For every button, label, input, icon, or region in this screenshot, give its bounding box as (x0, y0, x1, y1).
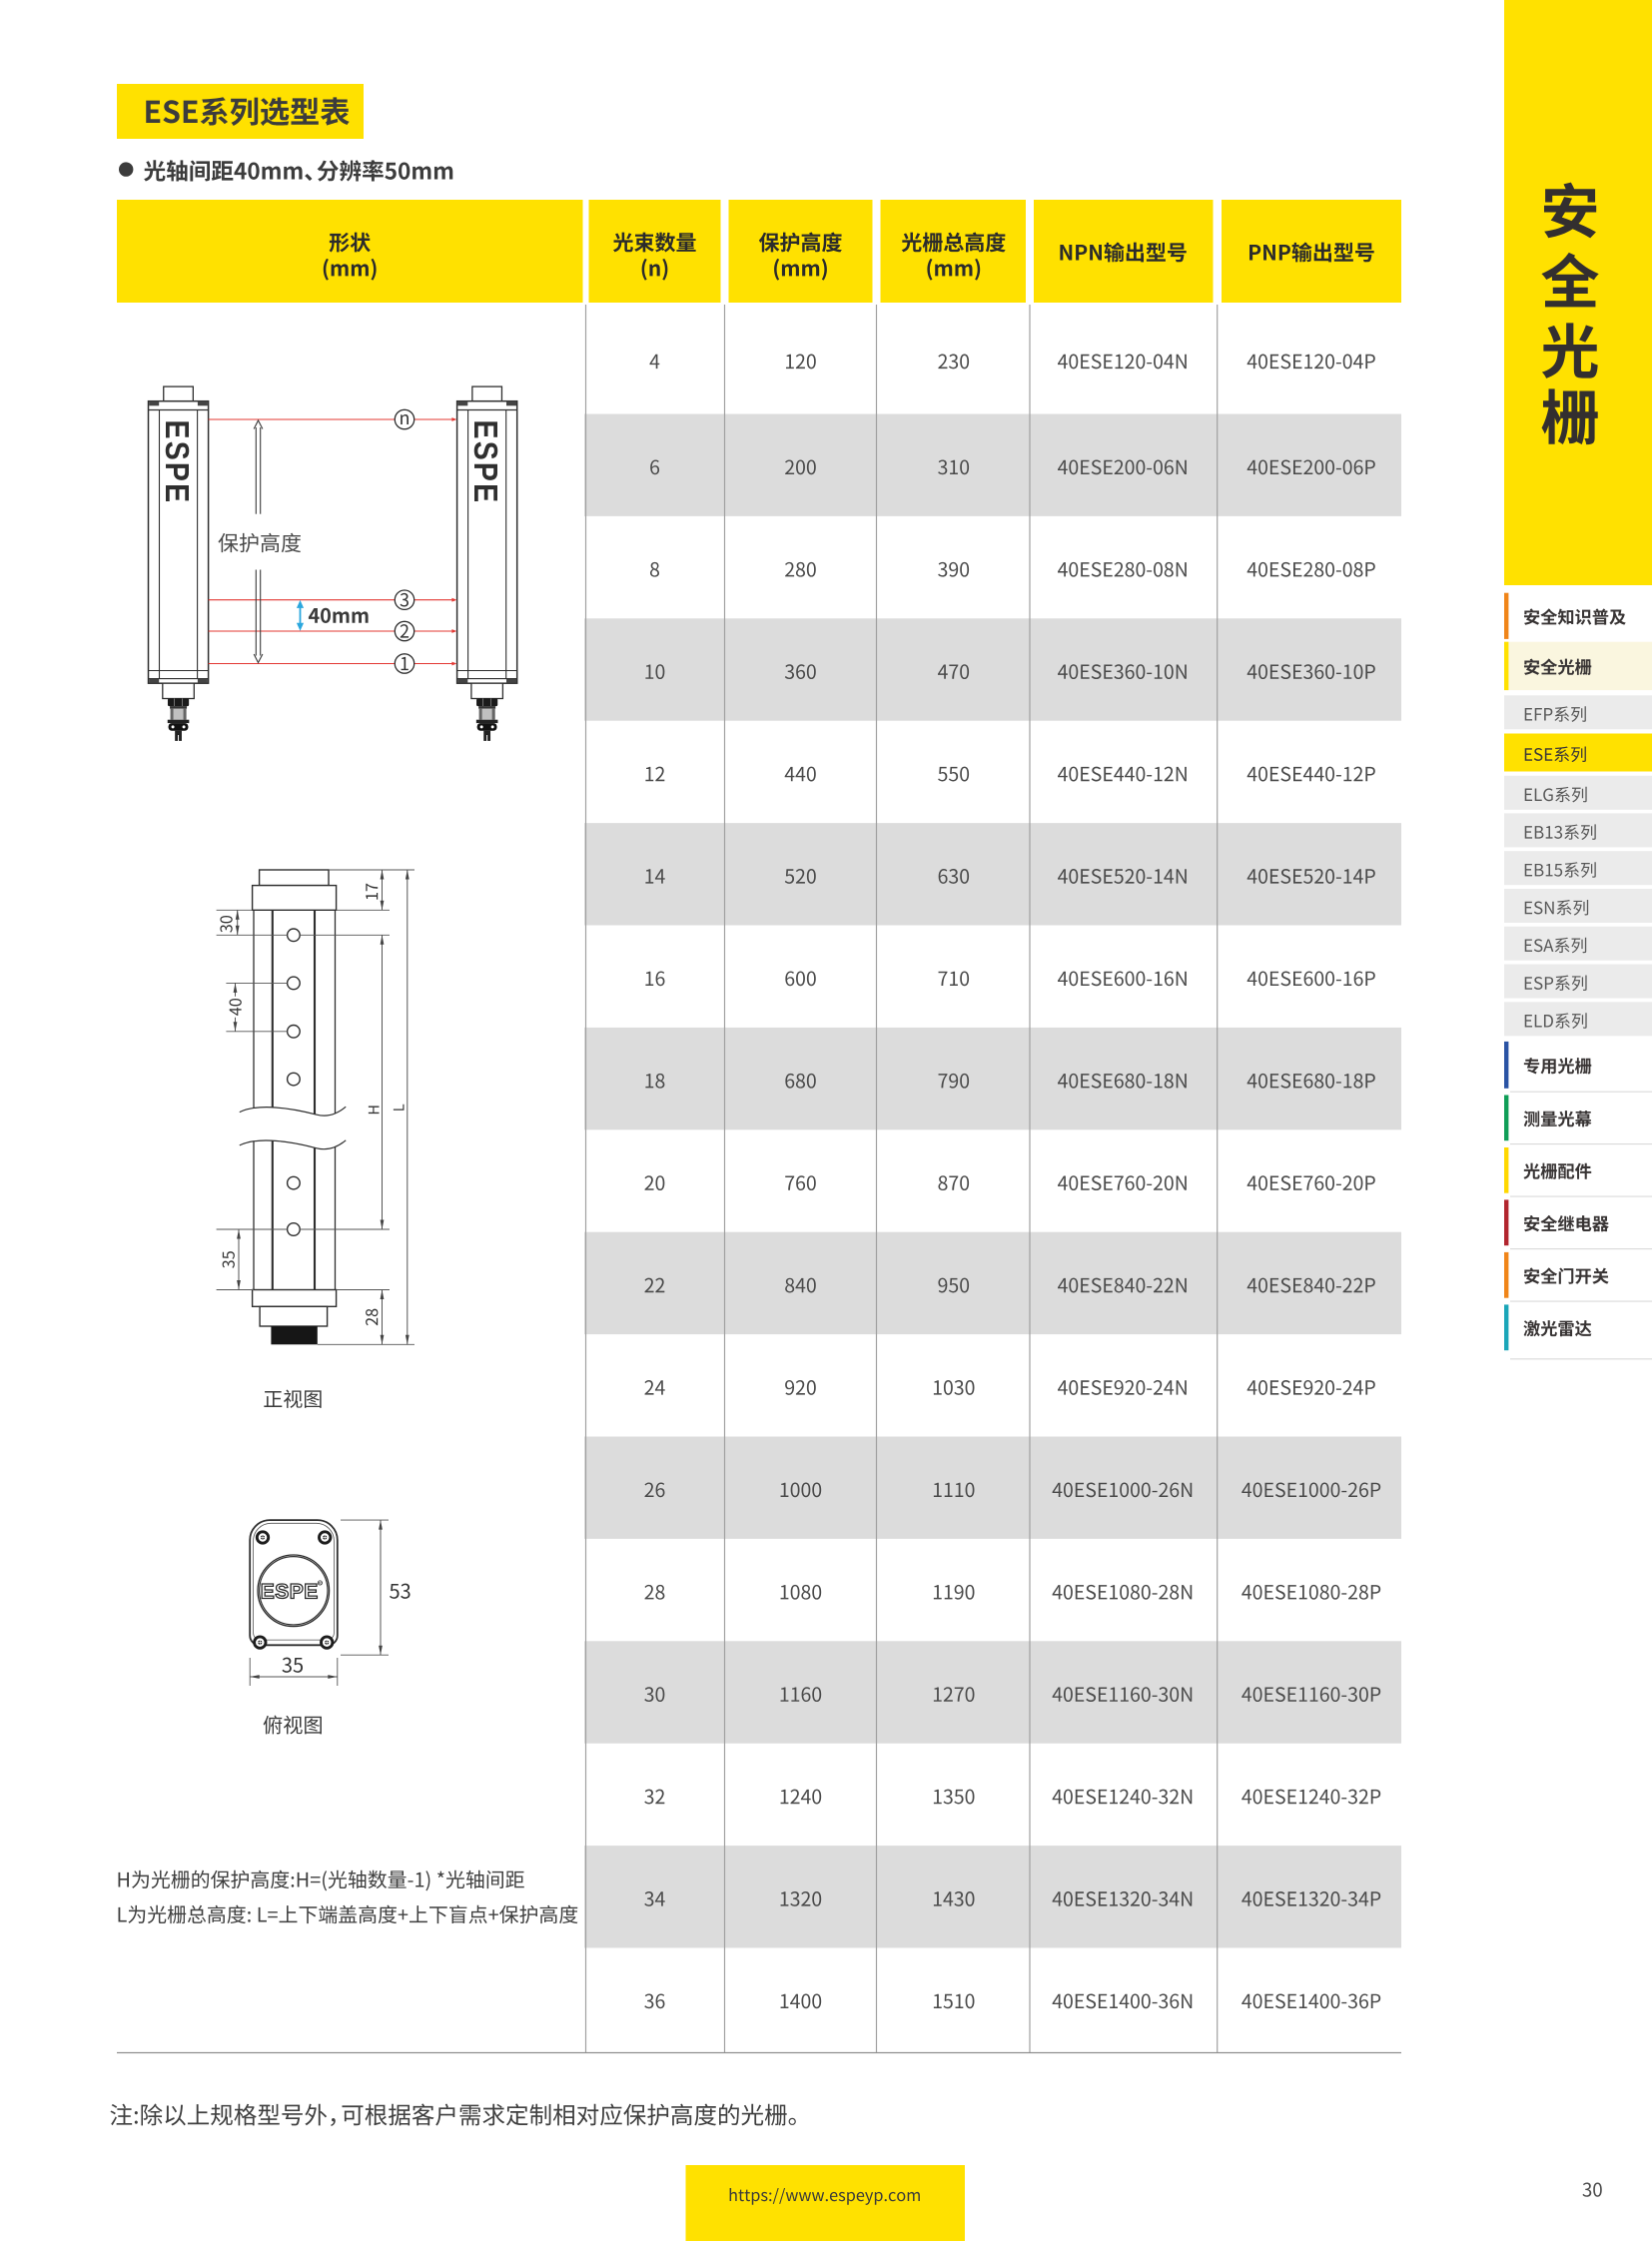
svg-text:ESPE: ESPE (261, 1580, 319, 1603)
svg-text:ESPE: ESPE (467, 420, 505, 505)
svg-text:ESPE: ESPE (159, 420, 197, 505)
